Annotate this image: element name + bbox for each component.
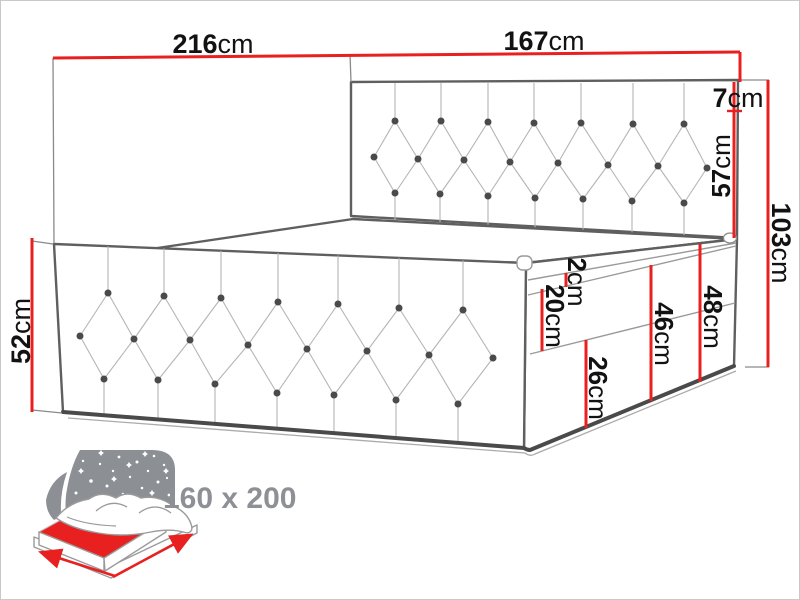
- tuft-button: [485, 193, 492, 200]
- bed-size-icon: 160 x 200: [34, 450, 296, 578]
- dim-103-label: 103cm: [766, 202, 796, 283]
- dim-57-label: 57cm: [706, 134, 736, 198]
- dim-20-label: 20cm: [540, 284, 570, 348]
- tuft-button: [681, 121, 688, 128]
- tuft-button: [630, 121, 637, 128]
- tuft-button: [392, 118, 399, 125]
- tuft-button: [331, 392, 338, 399]
- tuft-button: [161, 293, 168, 300]
- tuft-button: [578, 120, 585, 127]
- tuft-button: [490, 355, 497, 362]
- tuft-button: [187, 337, 194, 344]
- tuft-button: [77, 333, 84, 340]
- dim-7-label: 7cm: [712, 83, 763, 113]
- headboard: [351, 80, 738, 238]
- tuft-button: [212, 381, 219, 388]
- dim-46-label: 46cm: [649, 302, 679, 366]
- corner-cap: [517, 256, 532, 270]
- tuft-button: [245, 342, 252, 349]
- tuft-button: [580, 196, 587, 203]
- dimension-line-216-167: [53, 52, 740, 58]
- tuft-button: [101, 376, 108, 383]
- dim-167-label: 167cm: [503, 26, 584, 56]
- tuft-button: [364, 348, 371, 355]
- tuft-button: [455, 401, 462, 408]
- tuft-button: [218, 295, 225, 302]
- tuft-button: [531, 120, 538, 127]
- tuft-button: [274, 390, 281, 397]
- tuft-button: [438, 118, 445, 125]
- tuft-button: [371, 154, 378, 161]
- diagram-canvas: 216cm 167cm 7cm 57cm 103cm 52cm 2cm 20cm…: [0, 0, 800, 600]
- tuft-button: [629, 198, 636, 205]
- tuft-button: [415, 156, 422, 163]
- size-label: 160 x 200: [163, 482, 296, 515]
- tuft-button: [605, 162, 612, 169]
- tuft-button: [393, 397, 400, 404]
- tuft-button: [655, 163, 662, 170]
- tuft-button: [485, 119, 492, 126]
- dim-48-label: 48cm: [698, 285, 728, 349]
- bed-dimension-diagram: 216cm 167cm 7cm 57cm 103cm 52cm 2cm 20cm…: [1, 1, 800, 600]
- tuft-button: [335, 301, 342, 308]
- tuft-button: [275, 299, 282, 306]
- tuft-button: [392, 190, 399, 197]
- dim-216-label: 216cm: [172, 29, 253, 59]
- tuft-button: [507, 159, 514, 166]
- tuft-button: [155, 377, 162, 384]
- dim-52-label: 52cm: [6, 298, 36, 364]
- tuft-button: [555, 160, 562, 167]
- tuft-button: [105, 290, 112, 297]
- tuft-button: [437, 191, 444, 198]
- tuft-button: [396, 305, 403, 312]
- tuft-button: [304, 346, 311, 353]
- tuft-button: [532, 195, 539, 202]
- tuft-button: [681, 200, 688, 207]
- tuft-button: [461, 157, 468, 164]
- tuft-button: [131, 336, 138, 343]
- tuft-button: [460, 307, 467, 314]
- tuft-button: [426, 352, 433, 359]
- dim-26-label: 26cm: [583, 356, 613, 420]
